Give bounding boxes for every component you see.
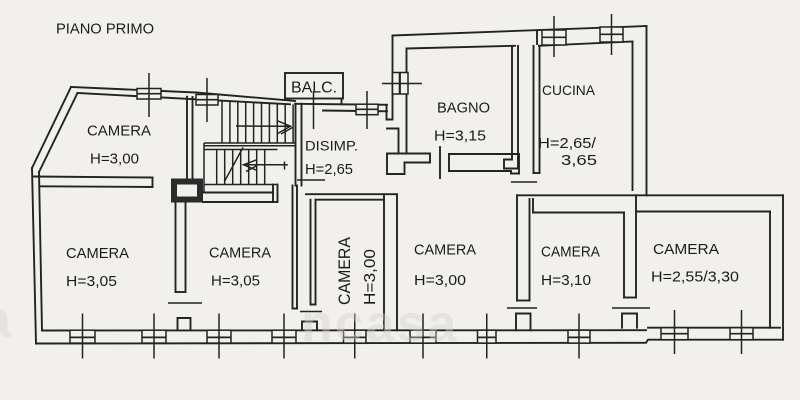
- svg-text:DISIMP.: DISIMP.: [305, 138, 358, 154]
- svg-text:PIANO PRIMO: PIANO PRIMO: [56, 21, 154, 38]
- svg-text:BALC.: BALC.: [291, 80, 337, 97]
- svg-text:CAMERA: CAMERA: [66, 246, 129, 262]
- svg-text:H=2,65: H=2,65: [305, 162, 353, 178]
- svg-text:H=2,55/3,30: H=2,55/3,30: [651, 270, 739, 286]
- svg-text:a: a: [0, 291, 12, 349]
- svg-text:CAMERA: CAMERA: [541, 245, 600, 261]
- svg-text:BAGNO: BAGNO: [437, 100, 490, 117]
- svg-text:H=3,05: H=3,05: [66, 274, 117, 290]
- svg-text:H=2,65/: H=2,65/: [538, 136, 597, 152]
- svg-text:H=3,00: H=3,00: [414, 273, 466, 289]
- svg-text:3,65: 3,65: [561, 153, 597, 169]
- svg-text:H=3,15: H=3,15: [434, 129, 486, 145]
- svg-text:CUCINA: CUCINA: [542, 82, 596, 98]
- svg-text:CAMERA: CAMERA: [653, 242, 719, 258]
- svg-text:CAMERA: CAMERA: [209, 246, 271, 262]
- svg-text:CAMERA: CAMERA: [414, 243, 476, 259]
- svg-text:CAMERA: CAMERA: [336, 237, 354, 305]
- svg-text:H=3,00: H=3,00: [362, 249, 379, 305]
- svg-text:ncasa: ncasa: [301, 295, 458, 353]
- svg-text:H=3,00: H=3,00: [90, 152, 139, 168]
- svg-text:CAMERA: CAMERA: [87, 123, 151, 140]
- svg-text:H=3,10: H=3,10: [541, 273, 591, 289]
- svg-text:H=3,05: H=3,05: [211, 274, 260, 290]
